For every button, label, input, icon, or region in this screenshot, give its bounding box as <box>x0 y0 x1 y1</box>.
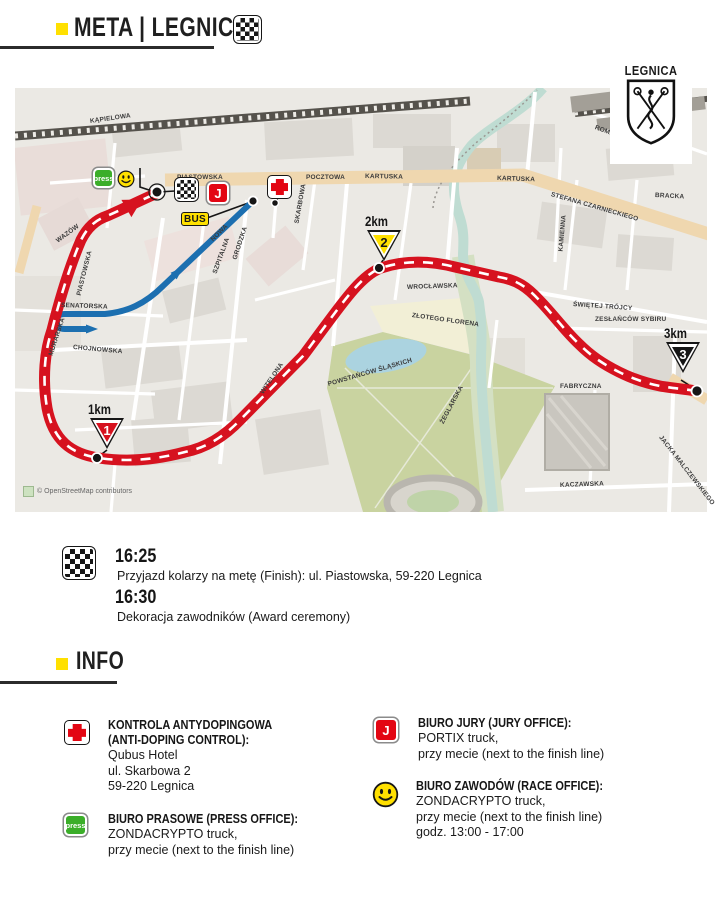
city-emblem: LEGNICA <box>610 62 692 164</box>
header-rule <box>0 46 214 49</box>
block-line: godz. 13:00 - 17:00 <box>416 825 628 841</box>
jury-office-text: BIURO JURY (JURY OFFICE): PORTIX truck, … <box>418 716 604 762</box>
page-title: META | LEGNICA <box>74 12 249 43</box>
checker-pattern <box>65 549 93 577</box>
info-title: INFO <box>76 647 124 676</box>
km-label: 3km <box>664 326 696 341</box>
block-line: ul. Skarbowa 2 <box>108 764 295 780</box>
anti-doping-text: KONTROLA ANTYDOPINGOWA (ANTI-DOPING CONT… <box>108 718 295 795</box>
km-marker-3: 3km 3 <box>664 326 702 374</box>
block-line: PORTIX truck, <box>418 731 604 747</box>
block-line: ZONDACRYPTO truck, <box>416 794 628 810</box>
info-rule <box>0 681 117 684</box>
block-line: przy mecie (next to the finish line) <box>418 747 604 763</box>
race-office-smiley-icon <box>372 781 399 808</box>
km-marker-2: 2km 2 <box>365 214 403 262</box>
press-office-icon: press <box>93 168 114 188</box>
race-office-smiley-icon <box>117 170 135 188</box>
press-office-block: press BIURO PRASOWE (PRESS OFFICE): ZOND… <box>64 812 324 858</box>
block-line: przy mecie (next to the finish line) <box>108 843 324 859</box>
stadium <box>387 478 479 512</box>
anti-doping-block: KONTROLA ANTYDOPINGOWA (ANTI-DOPING CONT… <box>64 718 295 795</box>
ceremony-time: 16:30 <box>115 587 156 609</box>
checker-pattern <box>177 180 196 199</box>
km-marker-1: 1km 1 <box>88 402 126 450</box>
block-title: BIURO PRASOWE (PRESS OFFICE): <box>108 812 298 827</box>
street-label: BRACKA <box>655 192 685 201</box>
map-attribution: © OpenStreetMap contributors <box>23 486 132 497</box>
km-number: 3 <box>679 347 686 362</box>
block-line: ZONDACRYPTO truck, <box>108 827 324 843</box>
finish-flag-icon <box>233 15 262 44</box>
roadbook-page: META | LEGNICA <box>0 0 720 900</box>
yellow-bullet <box>56 23 68 35</box>
anti-doping-cross-icon <box>64 720 90 745</box>
city-name: LEGNICA <box>616 63 686 78</box>
street-label: ZESŁAŃCÓW SYBIRU <box>595 316 666 323</box>
finish-desc: Przyjazd kolarzy na metę (Finish): ul. P… <box>117 569 482 583</box>
block-line: 59-220 Legnica <box>108 779 295 795</box>
anti-doping-cross-icon <box>267 175 292 199</box>
route-map: KĄPIELOWA DWORCOWA PIASTOWSKA POCZTOWA K… <box>15 88 707 512</box>
block-line: przy mecie (next to the finish line) <box>416 810 628 826</box>
km-number: 2 <box>380 235 387 250</box>
km-number: 1 <box>103 423 110 438</box>
finish-time: 16:25 <box>115 546 156 568</box>
press-office-text: BIURO PRASOWE (PRESS OFFICE): ZONDACRYPT… <box>108 812 324 858</box>
coat-of-arms-icon <box>625 78 677 146</box>
press-office-icon: press <box>64 814 87 836</box>
block-line: Qubus Hotel <box>108 748 295 764</box>
race-office-text: BIURO ZAWODÓW (RACE OFFICE): ZONDACRYPTO… <box>416 779 628 841</box>
attribution-text: © OpenStreetMap contributors <box>37 488 132 495</box>
bus-zone-icon: BUS <box>181 212 209 226</box>
jury-office-icon: J <box>374 718 398 742</box>
finish-line-flag-icon <box>174 177 199 202</box>
km-label: 1km <box>88 402 120 417</box>
block-title: KONTROLA ANTYDOPINGOWA <box>108 718 272 733</box>
block-title: (ANTI-DOPING CONTROL): <box>108 733 272 748</box>
ceremony-desc: Dekoracja zawodników (Award ceremony) <box>117 610 350 624</box>
checker-pattern <box>236 18 259 41</box>
factory-building <box>545 394 609 470</box>
km-label: 2km <box>365 214 397 229</box>
jury-office-block: J BIURO JURY (JURY OFFICE): PORTIX truck… <box>374 716 604 762</box>
osm-logo-icon <box>23 486 34 497</box>
block-title: BIURO JURY (JURY OFFICE): <box>418 716 582 731</box>
street-label: POCZTOWA <box>306 174 345 181</box>
race-office-block: BIURO ZAWODÓW (RACE OFFICE): ZONDACRYPTO… <box>372 779 628 841</box>
block-title: BIURO ZAWODÓW (RACE OFFICE): <box>416 779 603 794</box>
jury-office-icon: J <box>207 182 229 204</box>
street-label: KARTUSKA <box>497 175 535 183</box>
yellow-bullet <box>56 658 68 670</box>
street-label: FABRYCZNA <box>560 383 602 390</box>
street-label: KARTUSKA <box>365 173 403 181</box>
finish-time-flag-icon <box>62 546 96 580</box>
